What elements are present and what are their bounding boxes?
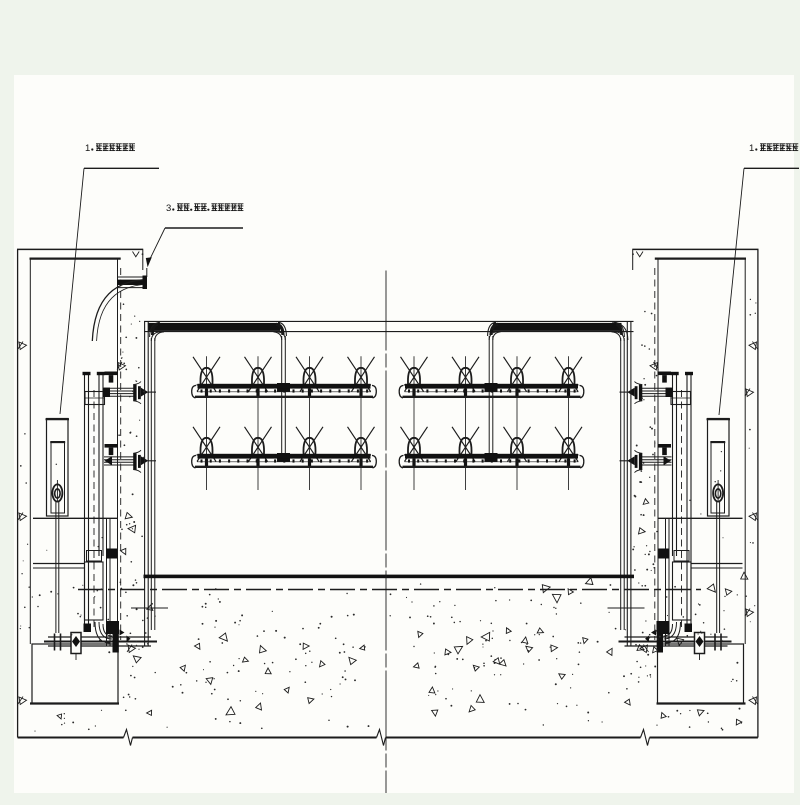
svg-text:1: 1 xyxy=(85,143,90,154)
svg-text:3: 3 xyxy=(166,203,171,214)
svg-text:1: 1 xyxy=(749,143,754,154)
